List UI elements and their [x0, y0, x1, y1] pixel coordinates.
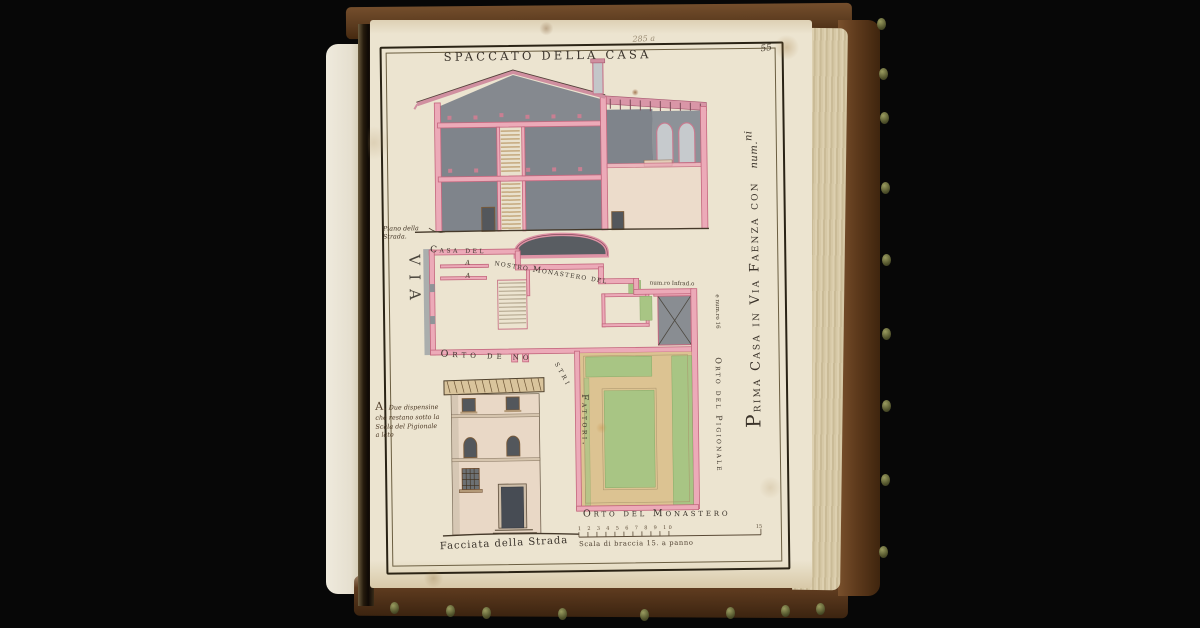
casa-del-label: Casa del [430, 245, 486, 256]
scale-tick-numbers: 1 2 3 4 5 6 7 8 9 10 [578, 525, 672, 532]
annex-roof [604, 94, 706, 111]
page-title: SPACCATO DELLA CASA [443, 47, 653, 64]
scale-caption: Scala di braccia 15. a panno [579, 539, 694, 548]
cover-stud [446, 605, 455, 617]
side-title-suffix: num. [749, 141, 760, 169]
cover-stud [781, 605, 790, 617]
doorway [498, 484, 527, 528]
note-a-line1: A. Due dispensine [375, 399, 475, 415]
manuscript-page: 1 2 3 4 5 6 7 8 9 10 15 SPACCATO DELLA C… [370, 20, 812, 588]
cover-stud [390, 602, 399, 614]
cover-stud [880, 112, 889, 124]
cover-stud [879, 546, 888, 558]
page-content: 1 2 3 4 5 6 7 8 9 10 15 SPACCATO DELLA C… [366, 17, 815, 591]
side-title-main: Prima Casa in Via Faenza con [746, 181, 764, 428]
chimney [591, 59, 605, 94]
pencil-annotation: 285 a [632, 34, 655, 44]
garden-plan [575, 350, 699, 512]
cover-stud [816, 603, 825, 615]
orto-monastero-label: Orto del Monastero [581, 508, 733, 520]
barred-window [459, 468, 482, 492]
section-drawing [413, 57, 710, 258]
piano-line2: Strada. [383, 233, 435, 241]
cover-stud [881, 474, 890, 486]
room-a-mark-lower: A [465, 272, 470, 280]
photographed-manuscript-scene: 1 2 3 4 5 6 7 8 9 10 15 SPACCATO DELLA C… [0, 0, 1200, 628]
cover-stud [558, 608, 567, 620]
orto-fattori-label-end: Fattori. [577, 394, 590, 486]
cellar-vault [515, 234, 607, 257]
piano-della-strada-label: Piano della Strada. [383, 225, 435, 241]
side-title-superscript: ni [743, 130, 754, 141]
cover-stud [881, 182, 890, 194]
courtyard [654, 291, 695, 346]
side-title: Prima Casa in Via Faenza con num.ni [738, 136, 758, 428]
scale-bar: 1 2 3 4 5 6 7 8 9 10 15 [578, 524, 763, 537]
plan-stairs [498, 280, 528, 329]
page-number: 55 [760, 43, 773, 54]
cover-stud [882, 400, 891, 412]
room-a-mark-upper: A [465, 259, 470, 267]
cover-stud [726, 607, 735, 619]
section-door [482, 207, 495, 231]
numero-infradetto-label: num.ro Infrad.o [650, 280, 695, 287]
e-numero-label: e num.ro 16 [711, 294, 721, 352]
cover-stud [877, 18, 886, 30]
cover-stud [882, 328, 891, 340]
note-a-legend: A. Due dispensine che restano sotto la S… [375, 399, 476, 440]
cover-stud [882, 254, 891, 266]
cover-stud [482, 607, 491, 619]
cover-stud [879, 68, 888, 80]
via-street-label: VIA [403, 254, 424, 346]
cover-stud [640, 609, 649, 621]
orto-pigionale-label: Orto del Pigionale [711, 357, 725, 509]
scale-end-number: 15 [756, 524, 762, 530]
note-a-line4: a lato [376, 429, 476, 439]
